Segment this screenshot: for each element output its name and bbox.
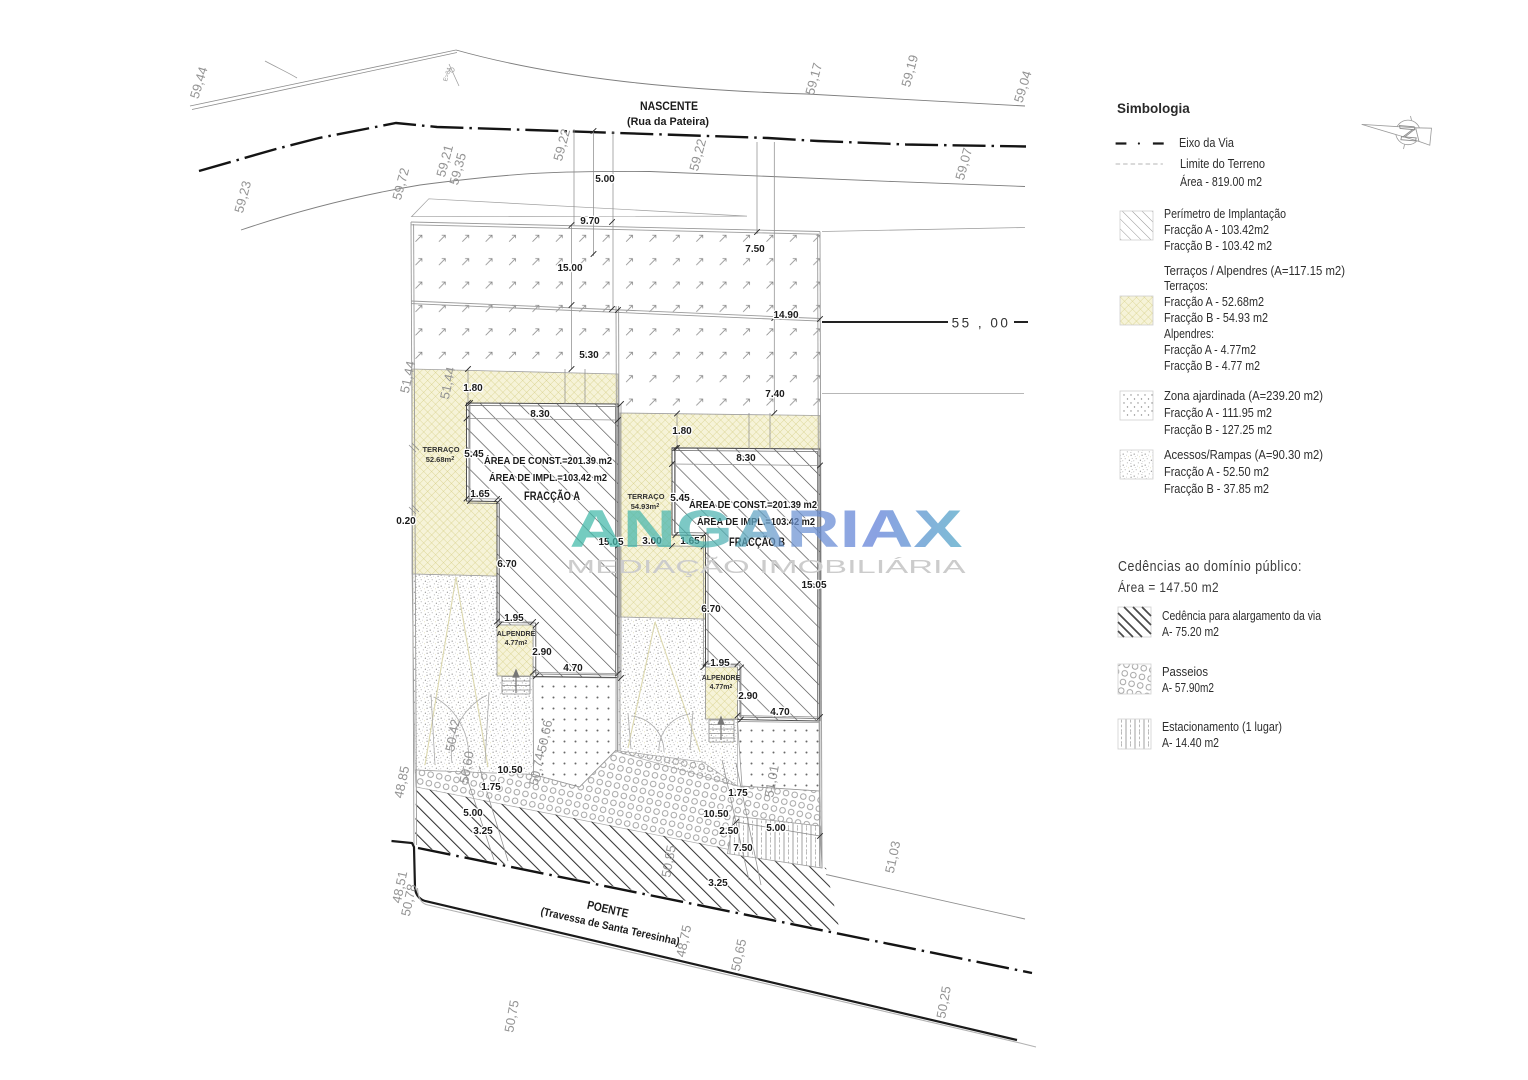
svg-text:5.00: 5.00 [463,808,483,819]
svg-text:52.68m2: 52.68m2 [426,455,455,464]
svg-text:Passeios: Passeios [1162,665,1208,679]
svg-text:ÁREA DE CONST.=201.39 m2: ÁREA DE CONST.=201.39 m2 [484,454,612,467]
svg-text:55 , 00: 55 , 00 [952,316,1011,331]
svg-text:ÁREA DE IMPL.=103.42 m2: ÁREA DE IMPL.=103.42 m2 [489,471,607,484]
svg-text:14.90: 14.90 [773,310,798,321]
svg-text:0.20: 0.20 [396,516,416,527]
svg-text:Área = 147.50 m2: Área = 147.50 m2 [1118,579,1219,595]
svg-text:A- 57.90m2: A- 57.90m2 [1162,681,1214,695]
svg-text:3.25: 3.25 [473,826,493,837]
svg-text:2.90: 2.90 [532,647,552,658]
svg-text:Fracção A - 52.68m2: Fracção A - 52.68m2 [1164,295,1264,309]
svg-text:7.50: 7.50 [745,244,765,255]
svg-text:ANGARIAX: ANGARIAX [570,500,963,559]
svg-text:15.05: 15.05 [801,580,826,591]
svg-text:5.00: 5.00 [766,823,786,834]
svg-text:TERRAÇO: TERRAÇO [422,445,459,454]
svg-text:ALPENDRE: ALPENDRE [702,675,741,682]
svg-text:Área - 819.00 m2: Área - 819.00 m2 [1180,174,1262,189]
svg-text:Fracção A - 52.50 m2: Fracção A - 52.50 m2 [1164,465,1269,479]
svg-text:1.75: 1.75 [481,782,501,793]
svg-text:4.70: 4.70 [563,663,583,674]
svg-text:2.50: 2.50 [719,826,739,837]
svg-text:8.30: 8.30 [736,453,756,464]
svg-text:5.45: 5.45 [464,449,484,460]
svg-text:1.65: 1.65 [470,489,490,500]
svg-text:Estacionamento (1 lugar): Estacionamento (1 lugar) [1162,720,1282,734]
svg-text:Cedências ao domínio público:: Cedências ao domínio público: [1118,559,1302,575]
svg-text:Terraços:: Terraços: [1164,279,1208,293]
svg-text:5.00: 5.00 [595,174,615,185]
svg-text:6.70: 6.70 [497,559,517,570]
svg-text:Fracção B - 103.42 m2: Fracção B - 103.42 m2 [1164,239,1272,253]
svg-text:Fracção A - 4.77m2: Fracção A - 4.77m2 [1164,343,1256,357]
svg-text:Alpendres:: Alpendres: [1164,327,1214,341]
svg-text:Zona ajardinada (A=239.20 m2): Zona ajardinada (A=239.20 m2) [1164,389,1323,403]
svg-text:3.25: 3.25 [708,878,728,889]
svg-text:ALPENDRE: ALPENDRE [497,631,536,638]
svg-text:7.40: 7.40 [765,389,785,400]
svg-text:Fracção B - 37.85 m2: Fracção B - 37.85 m2 [1164,482,1269,496]
svg-text:2.90: 2.90 [738,691,758,702]
svg-text:Eixo da Via: Eixo da Via [1179,136,1234,150]
svg-text:1.95: 1.95 [710,658,730,669]
svg-text:10.50: 10.50 [497,765,522,776]
svg-text:4.77m2: 4.77m2 [505,640,528,648]
svg-text:1.75: 1.75 [728,788,748,799]
svg-text:1.80: 1.80 [463,383,483,394]
svg-text:1.80: 1.80 [672,426,692,437]
svg-text:NASCENTE: NASCENTE [640,99,698,113]
svg-text:Acessos/Rampas (A=90.30 m2): Acessos/Rampas (A=90.30 m2) [1164,448,1323,462]
svg-text:Simbologia: Simbologia [1117,101,1190,116]
svg-text:Fracção B - 54.93 m2: Fracção B - 54.93 m2 [1164,311,1268,325]
svg-text:A- 75.20 m2: A- 75.20 m2 [1162,625,1219,639]
svg-text:Fracção A - 111.95 m2: Fracção A - 111.95 m2 [1164,406,1272,420]
svg-text:8.30: 8.30 [530,409,550,420]
svg-text:Fracção B - 127.25 m2: Fracção B - 127.25 m2 [1164,423,1272,437]
svg-text:7.50: 7.50 [733,843,753,854]
svg-text:Fracção A - 103.42m2: Fracção A - 103.42m2 [1164,223,1269,237]
svg-text:MEDIAÇÃO IMOBILIÁRIA: MEDIAÇÃO IMOBILIÁRIA [567,556,966,577]
svg-text:Perímetro de Implantação: Perímetro de Implantação [1164,207,1286,221]
svg-text:1.95: 1.95 [504,613,524,624]
svg-text:A- 14.40 m2: A- 14.40 m2 [1162,736,1219,750]
svg-text:15.00: 15.00 [557,263,582,274]
svg-text:6.70: 6.70 [701,604,721,615]
svg-text:Cedência para alargamento da v: Cedência para alargamento da via [1162,609,1321,623]
svg-text:5.30: 5.30 [579,350,599,361]
svg-text:(Rua da Pateira): (Rua da Pateira) [627,116,709,128]
svg-text:Terraços / Alpendres (A=117.1: Terraços / Alpendres (A=117.15 m2) [1164,264,1345,278]
svg-text:9.70: 9.70 [580,216,600,227]
svg-text:Limite do Terreno: Limite do Terreno [1180,157,1265,171]
svg-text:4.77m2: 4.77m2 [710,684,733,692]
svg-text:Fracção B - 4.77 m2: Fracção B - 4.77 m2 [1164,359,1260,373]
svg-text:4.70: 4.70 [770,707,790,718]
svg-text:10.50: 10.50 [703,809,728,820]
